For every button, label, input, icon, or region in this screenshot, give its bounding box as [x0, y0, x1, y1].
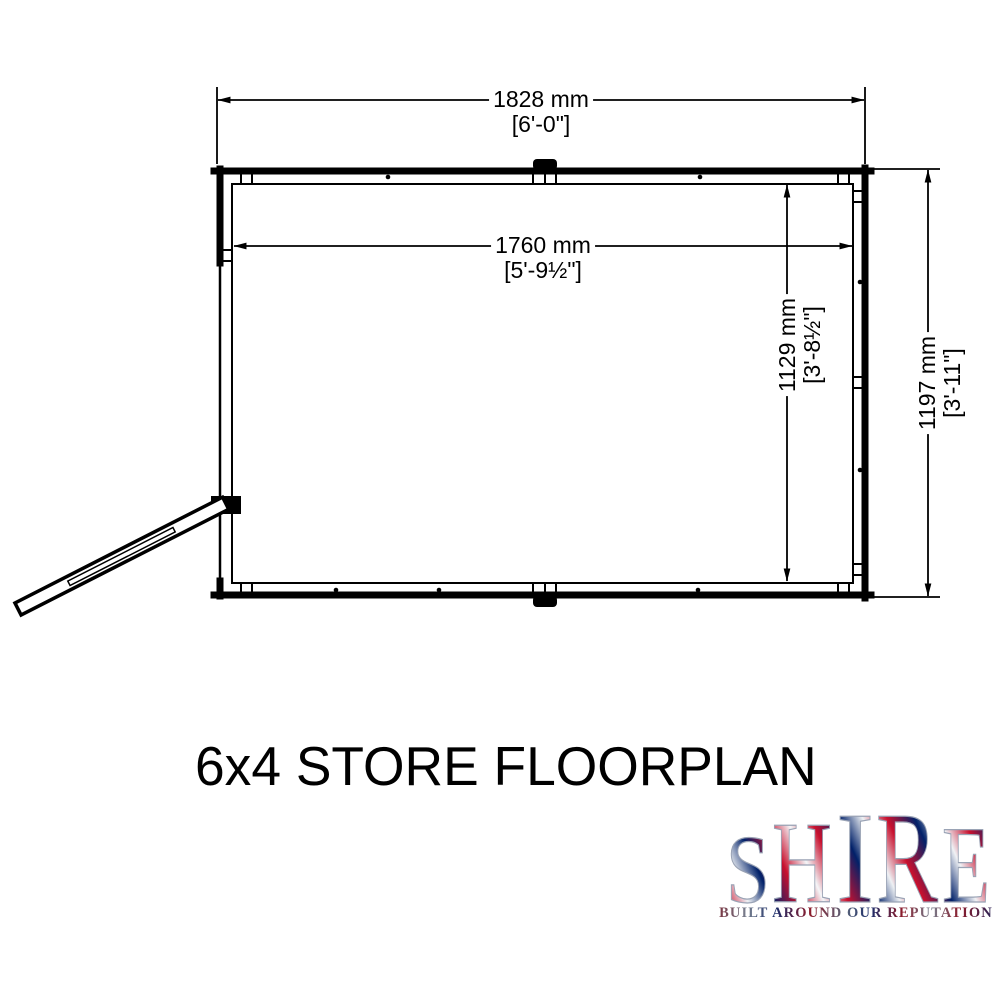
logo-tagline: BUILT AROUND OUR REPUTATION — [712, 905, 1000, 922]
top-joint-tab — [533, 159, 557, 170]
dim-inner-depth-label: 1129 mm [3'-8½"] — [775, 294, 825, 396]
logo-letter-s: S — [726, 816, 770, 912]
door-panel — [15, 497, 229, 615]
shire-logo-wordmark: S H I R E — [712, 792, 1000, 912]
dim-outer-width-label: 1828 mm [6'-0"] — [489, 87, 593, 137]
logo-letter-h: H — [772, 799, 832, 912]
shire-logo: S H I R E BUILT AROUND OUR REPUTATION — [712, 792, 1000, 932]
logo-letter-r: R — [876, 792, 938, 912]
bottom-joint-tab — [533, 596, 557, 607]
dim-inner-width-imperial: [5'-9½"] — [500, 258, 586, 283]
diagram-title: 6x4 STORE FLOORPLAN — [195, 734, 817, 798]
dim-inner-depth-metric: 1129 mm — [775, 294, 800, 396]
dim-outer-depth-label: 1197 mm [3'-11"] — [915, 332, 965, 434]
joint-tabs — [533, 159, 557, 607]
dim-inner-width-metric: 1760 mm — [491, 233, 595, 258]
logo-letter-e: E — [942, 804, 990, 912]
dim-outer-width-metric: 1828 mm — [489, 87, 593, 112]
logo-letter-i: I — [836, 792, 874, 912]
dim-outer-width-imperial: [6'-0"] — [508, 112, 575, 137]
dim-inner-depth-imperial: [3'-8½"] — [800, 302, 825, 388]
dimension-lines — [217, 87, 940, 597]
dim-outer-depth-imperial: [3'-11"] — [940, 344, 965, 422]
dim-outer-depth-metric: 1197 mm — [915, 332, 940, 434]
dim-inner-width-label: 1760 mm [5'-9½"] — [491, 233, 595, 283]
page: 1828 mm [6'-0"] 1760 mm [5'-9½"] 1129 mm… — [0, 0, 1000, 1000]
